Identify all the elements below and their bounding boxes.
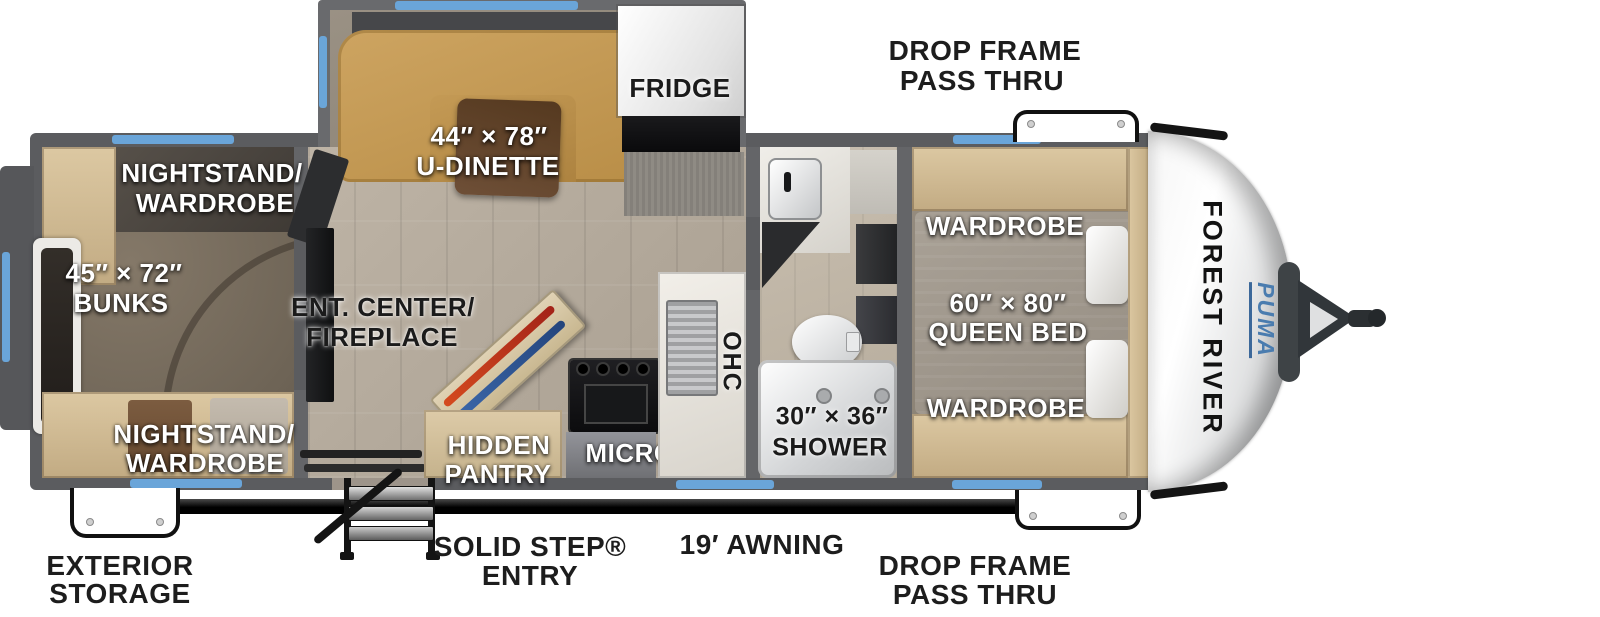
brand-puma: PUMA	[1249, 282, 1277, 358]
label-shower: SHOWER	[772, 436, 888, 461]
drop-frame-bottom-bracket	[1015, 490, 1141, 530]
bath-door-wedge	[762, 222, 820, 288]
label-fridge: FRIDGE	[629, 75, 730, 101]
label-solid-step-line1: SOLID STEP®	[434, 533, 627, 561]
label-wardrobe-top: WARDROBE	[926, 213, 1085, 239]
window-bottom-right	[952, 480, 1042, 489]
window-bottom-mid	[676, 480, 774, 489]
bath-cabinet-right-2	[856, 296, 897, 344]
label-queen-bed: QUEEN BED	[928, 319, 1087, 345]
toilet-seat-line	[846, 332, 860, 352]
entry-door-rail-1	[300, 450, 422, 458]
brand-forest-river: FOREST RIVER	[1199, 200, 1226, 436]
label-nightstand-top-line1: NIGHTSTAND/	[121, 160, 302, 186]
label-drop-frame-bottom-line2: PASS THRU	[893, 581, 1057, 609]
label-drop-frame-top-line1: DROP FRAME	[889, 37, 1082, 65]
label-exterior-storage-line2: STORAGE	[49, 580, 190, 608]
floorplan-canvas: NIGHTSTAND/ WARDROBE 45″ × 72″ BUNKS NIG…	[0, 0, 1600, 617]
drop-frame-top-bracket	[1013, 110, 1139, 142]
stove-burner-4	[638, 364, 648, 374]
bath-cabinet-top-right	[850, 150, 897, 214]
exterior-storage-bracket	[70, 488, 180, 538]
bracket-screw	[1119, 512, 1127, 520]
label-hidden-pantry-line2: PANTRY	[445, 461, 552, 487]
label-drop-frame-top-line2: PASS THRU	[900, 67, 1064, 95]
pillow-top	[1086, 226, 1128, 304]
bracket-screw	[156, 518, 164, 526]
dinette-slide-window-left	[319, 36, 327, 108]
label-ohc-kitchen: OHC	[719, 331, 744, 393]
wall-living-bath-top	[746, 147, 760, 217]
fridge-mat	[624, 152, 744, 216]
window-bottom-left	[130, 479, 242, 488]
rear-window	[2, 252, 10, 362]
bracket-screw	[1029, 512, 1037, 520]
bracket-screw	[86, 518, 94, 526]
label-queen-size: 60″ × 80″	[950, 290, 1067, 316]
stove-burner-2	[598, 364, 608, 374]
stove-oven-window	[584, 384, 648, 424]
label-drop-frame-bottom-line1: DROP FRAME	[879, 552, 1072, 580]
stove	[570, 360, 660, 432]
bath-sink	[768, 158, 822, 220]
label-dinette: U-DINETTE	[416, 153, 559, 179]
wall-bath-bedroom	[897, 147, 912, 478]
pillow-bottom	[1086, 340, 1128, 418]
label-ent-center-line1: ENT. CENTER/	[291, 294, 475, 320]
label-bunks-size: 45″ × 72″	[66, 260, 183, 286]
fridge-front	[622, 116, 740, 152]
label-wardrobe-bottom: WARDROBE	[927, 395, 1086, 421]
awning-bar	[160, 499, 1065, 514]
label-exterior-storage-line1: EXTERIOR	[46, 552, 193, 580]
dinette-slide-window-top	[395, 1, 578, 10]
label-nightstand-bottom-line2: WARDROBE	[126, 450, 285, 476]
bath-faucet	[784, 172, 791, 192]
stove-burner-1	[578, 364, 588, 374]
label-bunks: BUNKS	[74, 290, 169, 316]
bracket-screw	[1117, 120, 1125, 128]
label-shower-size: 30″ × 36″	[776, 405, 889, 430]
bedroom-cabinet-top	[912, 147, 1128, 211]
label-solid-step-line2: ENTRY	[482, 562, 578, 590]
kitchen-sink	[666, 300, 718, 396]
hitch-assembly	[1276, 256, 1386, 388]
step-tread-3	[348, 526, 434, 541]
stove-burner-3	[618, 364, 628, 374]
bracket-screw	[1027, 120, 1035, 128]
label-hidden-pantry-line1: HIDDEN	[448, 432, 551, 458]
label-awning: 19′ AWNING	[680, 531, 845, 559]
label-nightstand-top-line2: WARDROBE	[136, 190, 295, 216]
window-top-left	[112, 135, 234, 144]
bedroom-cabinet-bottom	[912, 414, 1128, 478]
label-ent-center-line2: FIREPLACE	[306, 324, 458, 350]
label-dinette-size: 44″ × 78″	[431, 123, 548, 149]
label-nightstand-bottom-line1: NIGHTSTAND/	[113, 421, 294, 447]
step-foot-left	[340, 552, 354, 560]
bath-cabinet-right	[856, 224, 897, 284]
